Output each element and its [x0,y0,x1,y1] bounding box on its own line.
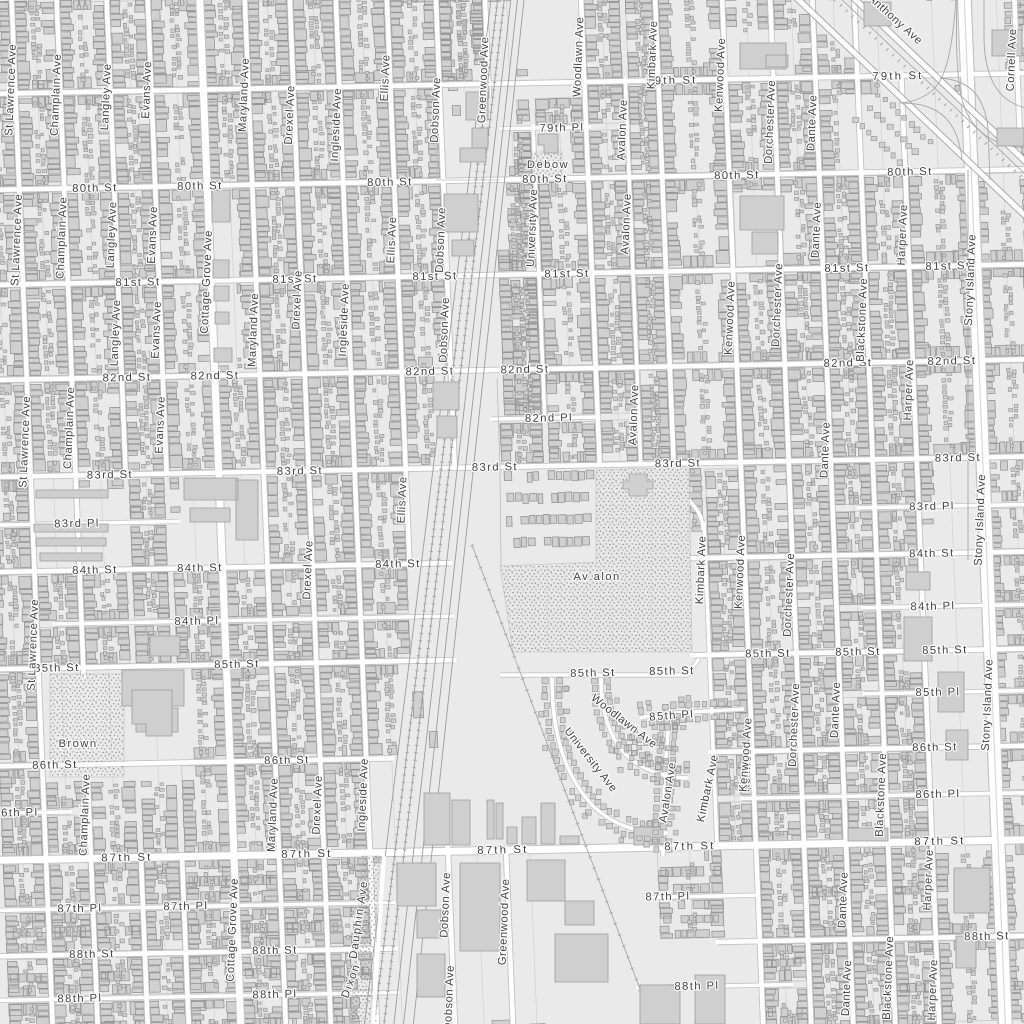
svg-text:83rd St: 83rd St [277,465,323,478]
svg-text:Dante Ave: Dante Ave [805,94,819,151]
svg-text:84th St: 84th St [909,547,955,560]
svg-text:84th St: 84th St [177,562,223,575]
svg-text:85th St: 85th St [570,667,616,680]
svg-text:87th Pl: 87th Pl [645,891,690,904]
svg-text:80th St: 80th St [367,176,413,189]
svg-text:88th Pl: 88th Pl [252,989,297,1002]
svg-text:87th St: 87th St [914,835,965,848]
svg-text:Debow: Debow [527,159,569,171]
svg-text:Drexel Ave: Drexel Ave [290,270,304,330]
svg-text:80th St: 80th St [522,173,568,186]
svg-text:85th St: 85th St [745,648,791,661]
svg-text:Evans Ave: Evans Ave [153,396,167,454]
svg-text:81st St: 81st St [925,260,970,273]
svg-text:81st St: 81st St [824,262,869,275]
svg-text:Evans Ave: Evans Ave [140,61,154,119]
svg-text:Harper Ave: Harper Ave [896,204,910,266]
svg-text:Evans Ave: Evans Ave [150,301,164,359]
svg-text:86th St: 86th St [264,754,310,767]
svg-text:88th St: 88th St [69,948,115,961]
svg-text:Dante Ave: Dante Ave [818,421,832,478]
svg-text:80th St: 80th St [72,182,118,195]
svg-text:81st St: 81st St [115,276,160,289]
svg-text:83rd St: 83rd St [655,457,701,470]
svg-text:86th Pl: 86th Pl [0,807,39,820]
svg-text:Harper Ave: Harper Ave [921,849,935,911]
svg-text:86th Pl: 86th Pl [915,788,960,801]
svg-text:Brown: Brown [58,738,97,750]
svg-text:88th Pl: 88th Pl [57,992,102,1005]
svg-text:84th St: 84th St [72,564,118,577]
svg-text:84th Pl: 84th Pl [910,600,955,613]
svg-text:85th St: 85th St [34,662,80,675]
svg-text:84th Pl: 84th Pl [174,615,219,628]
svg-text:85th St: 85th St [649,665,695,678]
svg-text:87th St: 87th St [477,844,528,857]
svg-text:86th St: 86th St [32,759,78,772]
svg-text:80th St: 80th St [177,180,223,193]
svg-text:88th St: 88th St [964,930,1010,943]
svg-text:85th St: 85th St [922,644,968,657]
svg-text:82nd Pl: 82nd Pl [525,412,573,425]
svg-text:Drexel Ave: Drexel Ave [283,85,297,145]
svg-text:83rd Pl: 83rd Pl [54,518,100,531]
svg-text:Avalon Ave: Avalon Ave [615,99,629,161]
svg-text:84th St: 84th St [375,558,421,571]
svg-text:Cornell Ave: Cornell Ave [1005,28,1020,92]
svg-text:79th Pl: 79th Pl [539,122,584,135]
svg-text:87th St: 87th St [664,840,715,853]
svg-text:Drexel Ave: Drexel Ave [301,540,315,600]
svg-text:80th St: 80th St [714,169,760,182]
svg-text:85th St: 85th St [835,646,881,659]
svg-text:87th Pl: 87th Pl [57,902,102,915]
svg-text:Avalon Ave: Avalon Ave [627,384,641,446]
svg-text:83rd St: 83rd St [935,452,981,465]
svg-text:Ellis Ave: Ellis Ave [396,476,410,523]
svg-text:Dante Ave: Dante Ave [810,201,824,258]
svg-text:88th St: 88th St [252,945,298,958]
svg-text:Dante Ave: Dante Ave [829,681,843,738]
svg-text:87th St: 87th St [101,851,152,864]
svg-text:87th Pl: 87th Pl [163,900,208,913]
svg-text:83rd St: 83rd St [87,469,133,482]
svg-text:79th St: 79th St [872,70,923,83]
svg-text:82nd St: 82nd St [190,370,239,383]
svg-text:88th Pl: 88th Pl [674,980,719,993]
svg-text:81st St: 81st St [544,268,589,281]
svg-text:Ellis Ave: Ellis Ave [379,54,393,101]
svg-text:82nd St: 82nd St [102,372,151,385]
svg-text:85th Pl: 85th Pl [915,686,960,699]
svg-text:Ellis Ave: Ellis Ave [385,216,399,263]
svg-text:Dante Ave: Dante Ave [840,959,854,1016]
svg-text:80th St: 80th St [887,166,933,179]
svg-text:82nd St: 82nd St [927,355,976,368]
svg-text:83rd St: 83rd St [472,461,518,474]
svg-text:83rd Pl: 83rd Pl [909,500,955,513]
svg-text:87th St: 87th St [281,848,332,861]
svg-text:Dante Ave: Dante Ave [836,871,850,928]
svg-text:Av alon: Av alon [573,571,620,583]
svg-text:Harper Ave: Harper Ave [926,959,940,1021]
svg-text:Evans Ave: Evans Ave [146,206,160,264]
svg-text:85th St: 85th St [214,658,260,671]
svg-text:Dobson Ave: Dobson Ave [442,965,457,1024]
svg-text:82nd St: 82nd St [405,365,454,378]
svg-text:82nd St: 82nd St [500,364,549,377]
svg-text:86th St: 86th St [912,741,958,754]
svg-text:Avalon Ave: Avalon Ave [619,193,633,255]
svg-text:Drexel Ave: Drexel Ave [311,775,325,835]
svg-text:Harper Ave: Harper Ave [902,359,916,421]
